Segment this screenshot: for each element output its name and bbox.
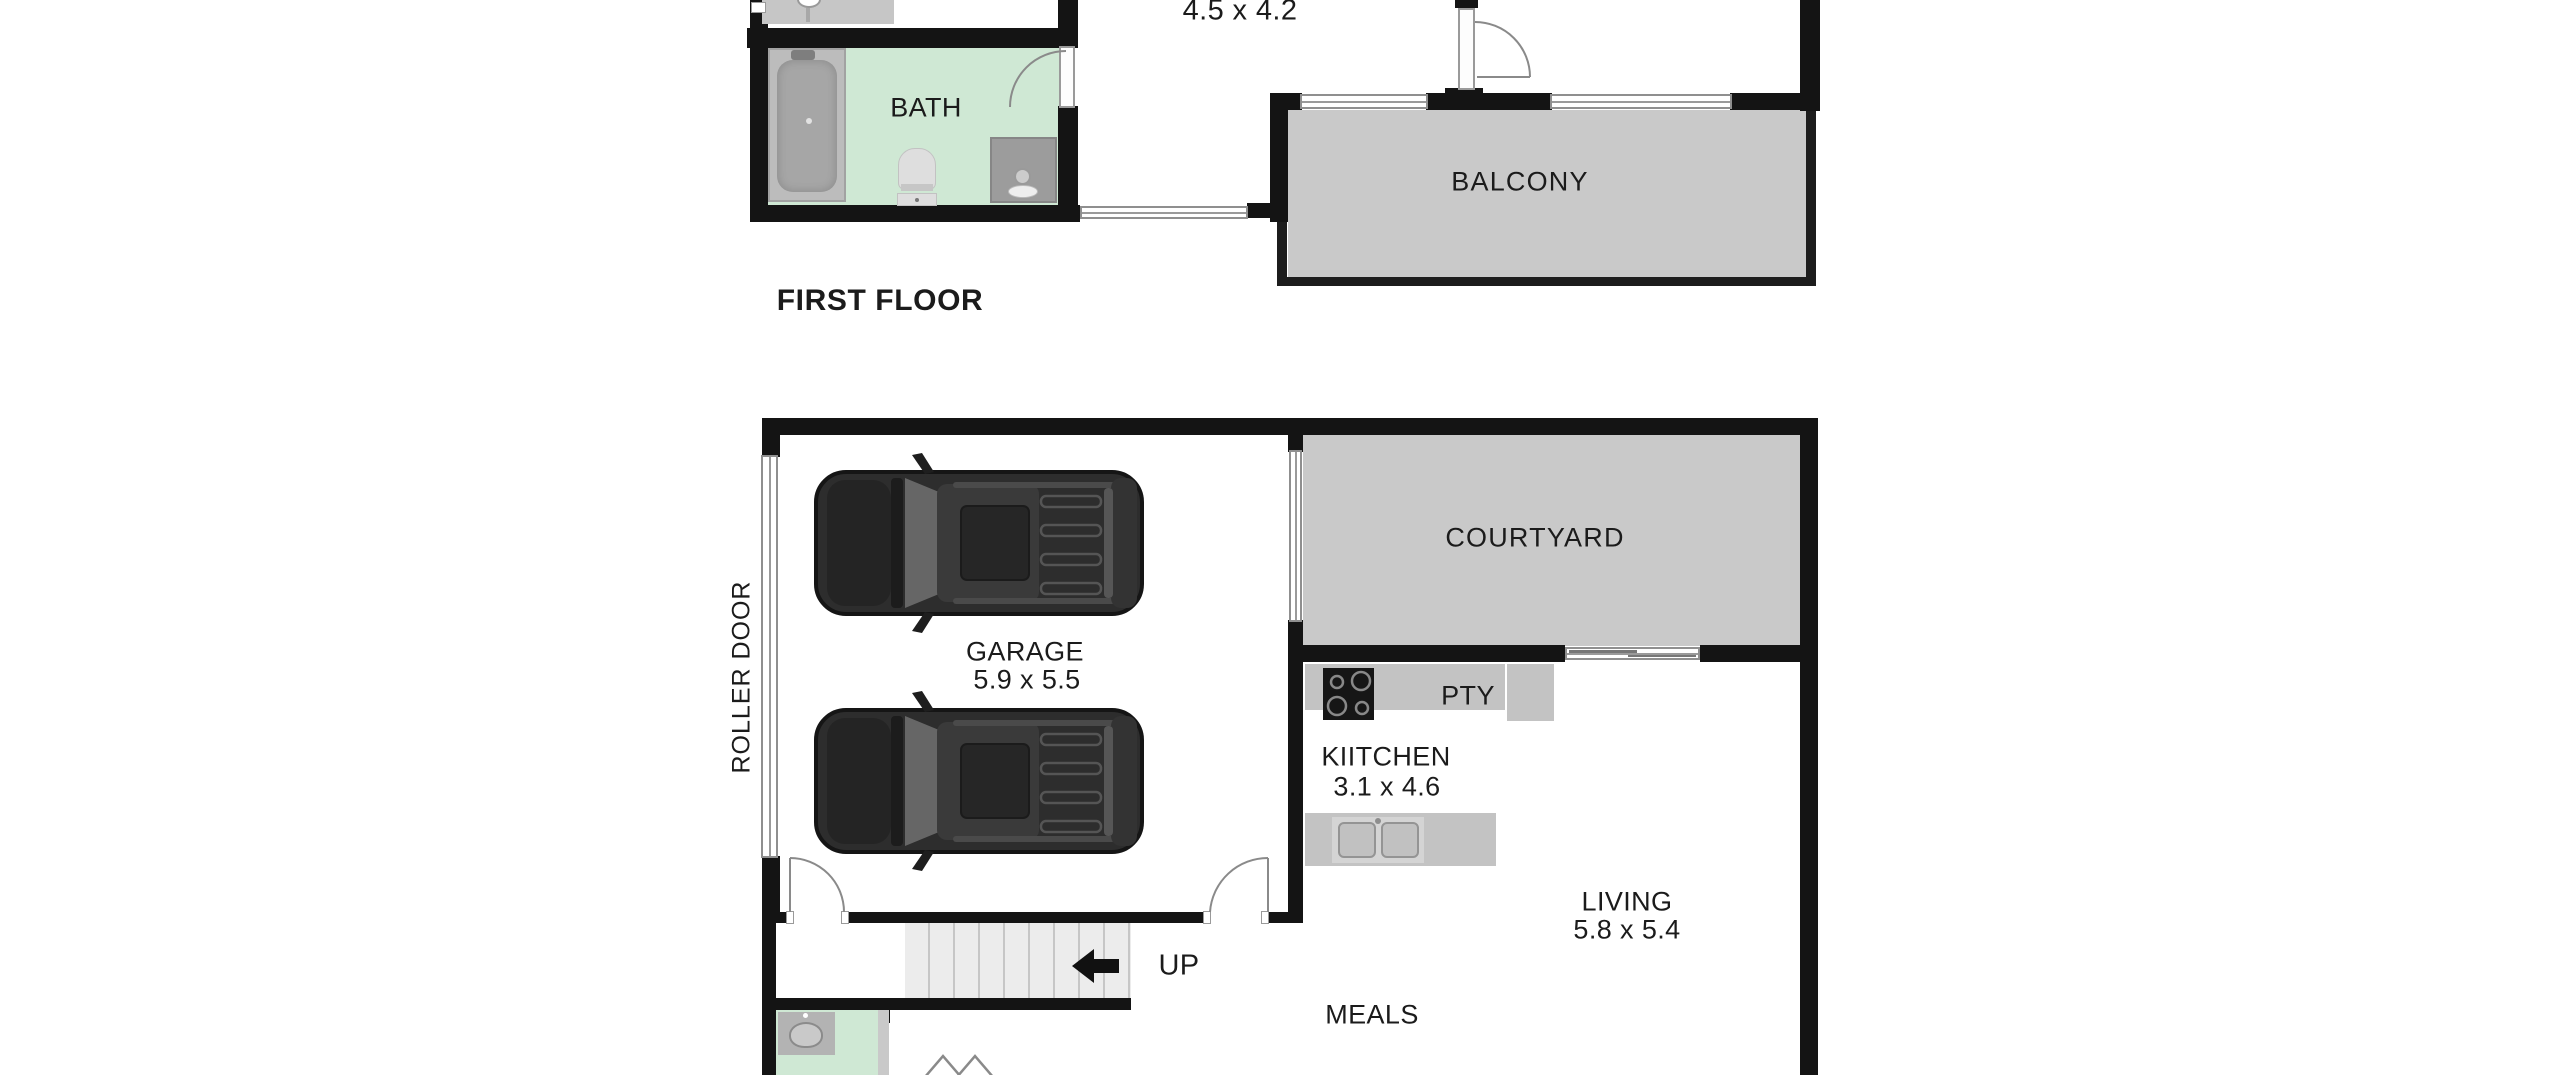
shower-head (1014, 168, 1031, 185)
bathtub-faucet (791, 50, 815, 60)
door-arc-garage-right (1210, 858, 1268, 912)
wall-stair-bottom (762, 998, 1131, 1010)
car-top (816, 453, 1142, 633)
living-dimensions: 5.8 x 5.4 (1573, 915, 1680, 946)
kitchen-dimensions: 3.1 x 4.6 (1333, 772, 1440, 803)
balcony-border-bottom (1277, 277, 1816, 286)
car-bottom (816, 691, 1142, 871)
balcony-border-left (1277, 222, 1287, 285)
room-label-garage: GARAGE (966, 637, 1084, 668)
roller-door-label: ROLLER DOOR (728, 581, 757, 774)
wall-gf-right (1800, 418, 1818, 1075)
window-balcony-1 (1300, 94, 1428, 109)
wall-bedroom-door-stub (1455, 0, 1478, 8)
area-label-courtyard: COURTYARD (1445, 523, 1624, 554)
stairs-up-label: UP (1158, 950, 1199, 983)
wall-garage-right-bottom (1288, 620, 1303, 923)
shower-base (1008, 185, 1038, 198)
garage-dimensions: 5.9 x 5.5 (973, 665, 1080, 696)
powder-faucet (803, 1013, 808, 1018)
door-jamb (841, 911, 849, 924)
sink-basin-left (1338, 822, 1376, 858)
partition-wall (878, 1010, 889, 1075)
vanity-faucet (806, 8, 810, 22)
pantry-label: PTY (1441, 681, 1495, 712)
wall-garage-top (762, 418, 1303, 435)
bathtub-drain (806, 118, 812, 124)
floor-title: FIRST FLOOR (777, 284, 984, 318)
sliding-rail (1569, 650, 1637, 653)
vanity-counter (762, 0, 894, 24)
toilet-seat (901, 184, 933, 191)
sink-basin-right (1381, 822, 1419, 858)
door-arc-bedroom (1475, 22, 1530, 77)
door-arc-garage-left (790, 858, 844, 912)
room-label-balcony: BALCONY (1451, 167, 1588, 198)
bath-door-panel (1059, 46, 1075, 108)
door-jamb (786, 911, 794, 924)
floorplan-canvas: BATH BALCONY 4.5 x 4.2 FIRST FLOOR GARAG… (0, 0, 2560, 1075)
wall-balcony-top-a (1270, 93, 1302, 110)
stove-cooktop (1323, 668, 1374, 720)
door-jamb (1261, 911, 1269, 924)
sliding-rail (1628, 654, 1696, 657)
wall-bath-top (747, 28, 1078, 48)
bedroom-door-panel (1458, 8, 1475, 90)
window-landing (1080, 206, 1248, 219)
wall-door-tee (1445, 88, 1483, 110)
window-garage-courtyard (1289, 450, 1302, 622)
bathtub-basin (777, 60, 837, 192)
room-label-kitchen: KIITCHEN (1321, 742, 1450, 773)
wall-balcony-left (1270, 93, 1288, 222)
wall-garage-bottom-b (848, 912, 1205, 923)
wall-bath-right-top (1058, 0, 1078, 30)
sliding-door-courtyard (1565, 647, 1700, 660)
powder-basin (789, 1022, 823, 1048)
wall-roller-corner-bottom (762, 856, 780, 914)
folding-door-chevrons (925, 1056, 993, 1075)
roller-door (761, 455, 778, 858)
wall-bath-bottom (750, 205, 1080, 222)
bedroom-dimensions: 4.5 x 4.2 (1183, 0, 1298, 28)
staircase (905, 923, 1131, 998)
room-label-meals: MEALS (1325, 1000, 1419, 1031)
balcony-border-right (1806, 110, 1816, 286)
room-label-bath: BATH (890, 93, 962, 124)
wall-ff-left (750, 0, 768, 222)
window-jamb (751, 2, 766, 13)
wall-courtyard-top (1296, 418, 1818, 435)
wall-ff-right (1800, 0, 1820, 111)
toilet-button (915, 198, 919, 202)
door-jamb (1203, 911, 1211, 924)
wall-gf-left (762, 912, 776, 1075)
wall-courtyard-bottom-a (1288, 645, 1565, 662)
kitchen-counter-block (1507, 664, 1554, 721)
sink-faucet (1375, 818, 1381, 824)
window-balcony-2 (1550, 94, 1732, 109)
room-label-living: LIVING (1582, 887, 1673, 918)
wall-garage-bottom-a (762, 912, 788, 923)
wall-roller-corner-top (762, 433, 780, 457)
